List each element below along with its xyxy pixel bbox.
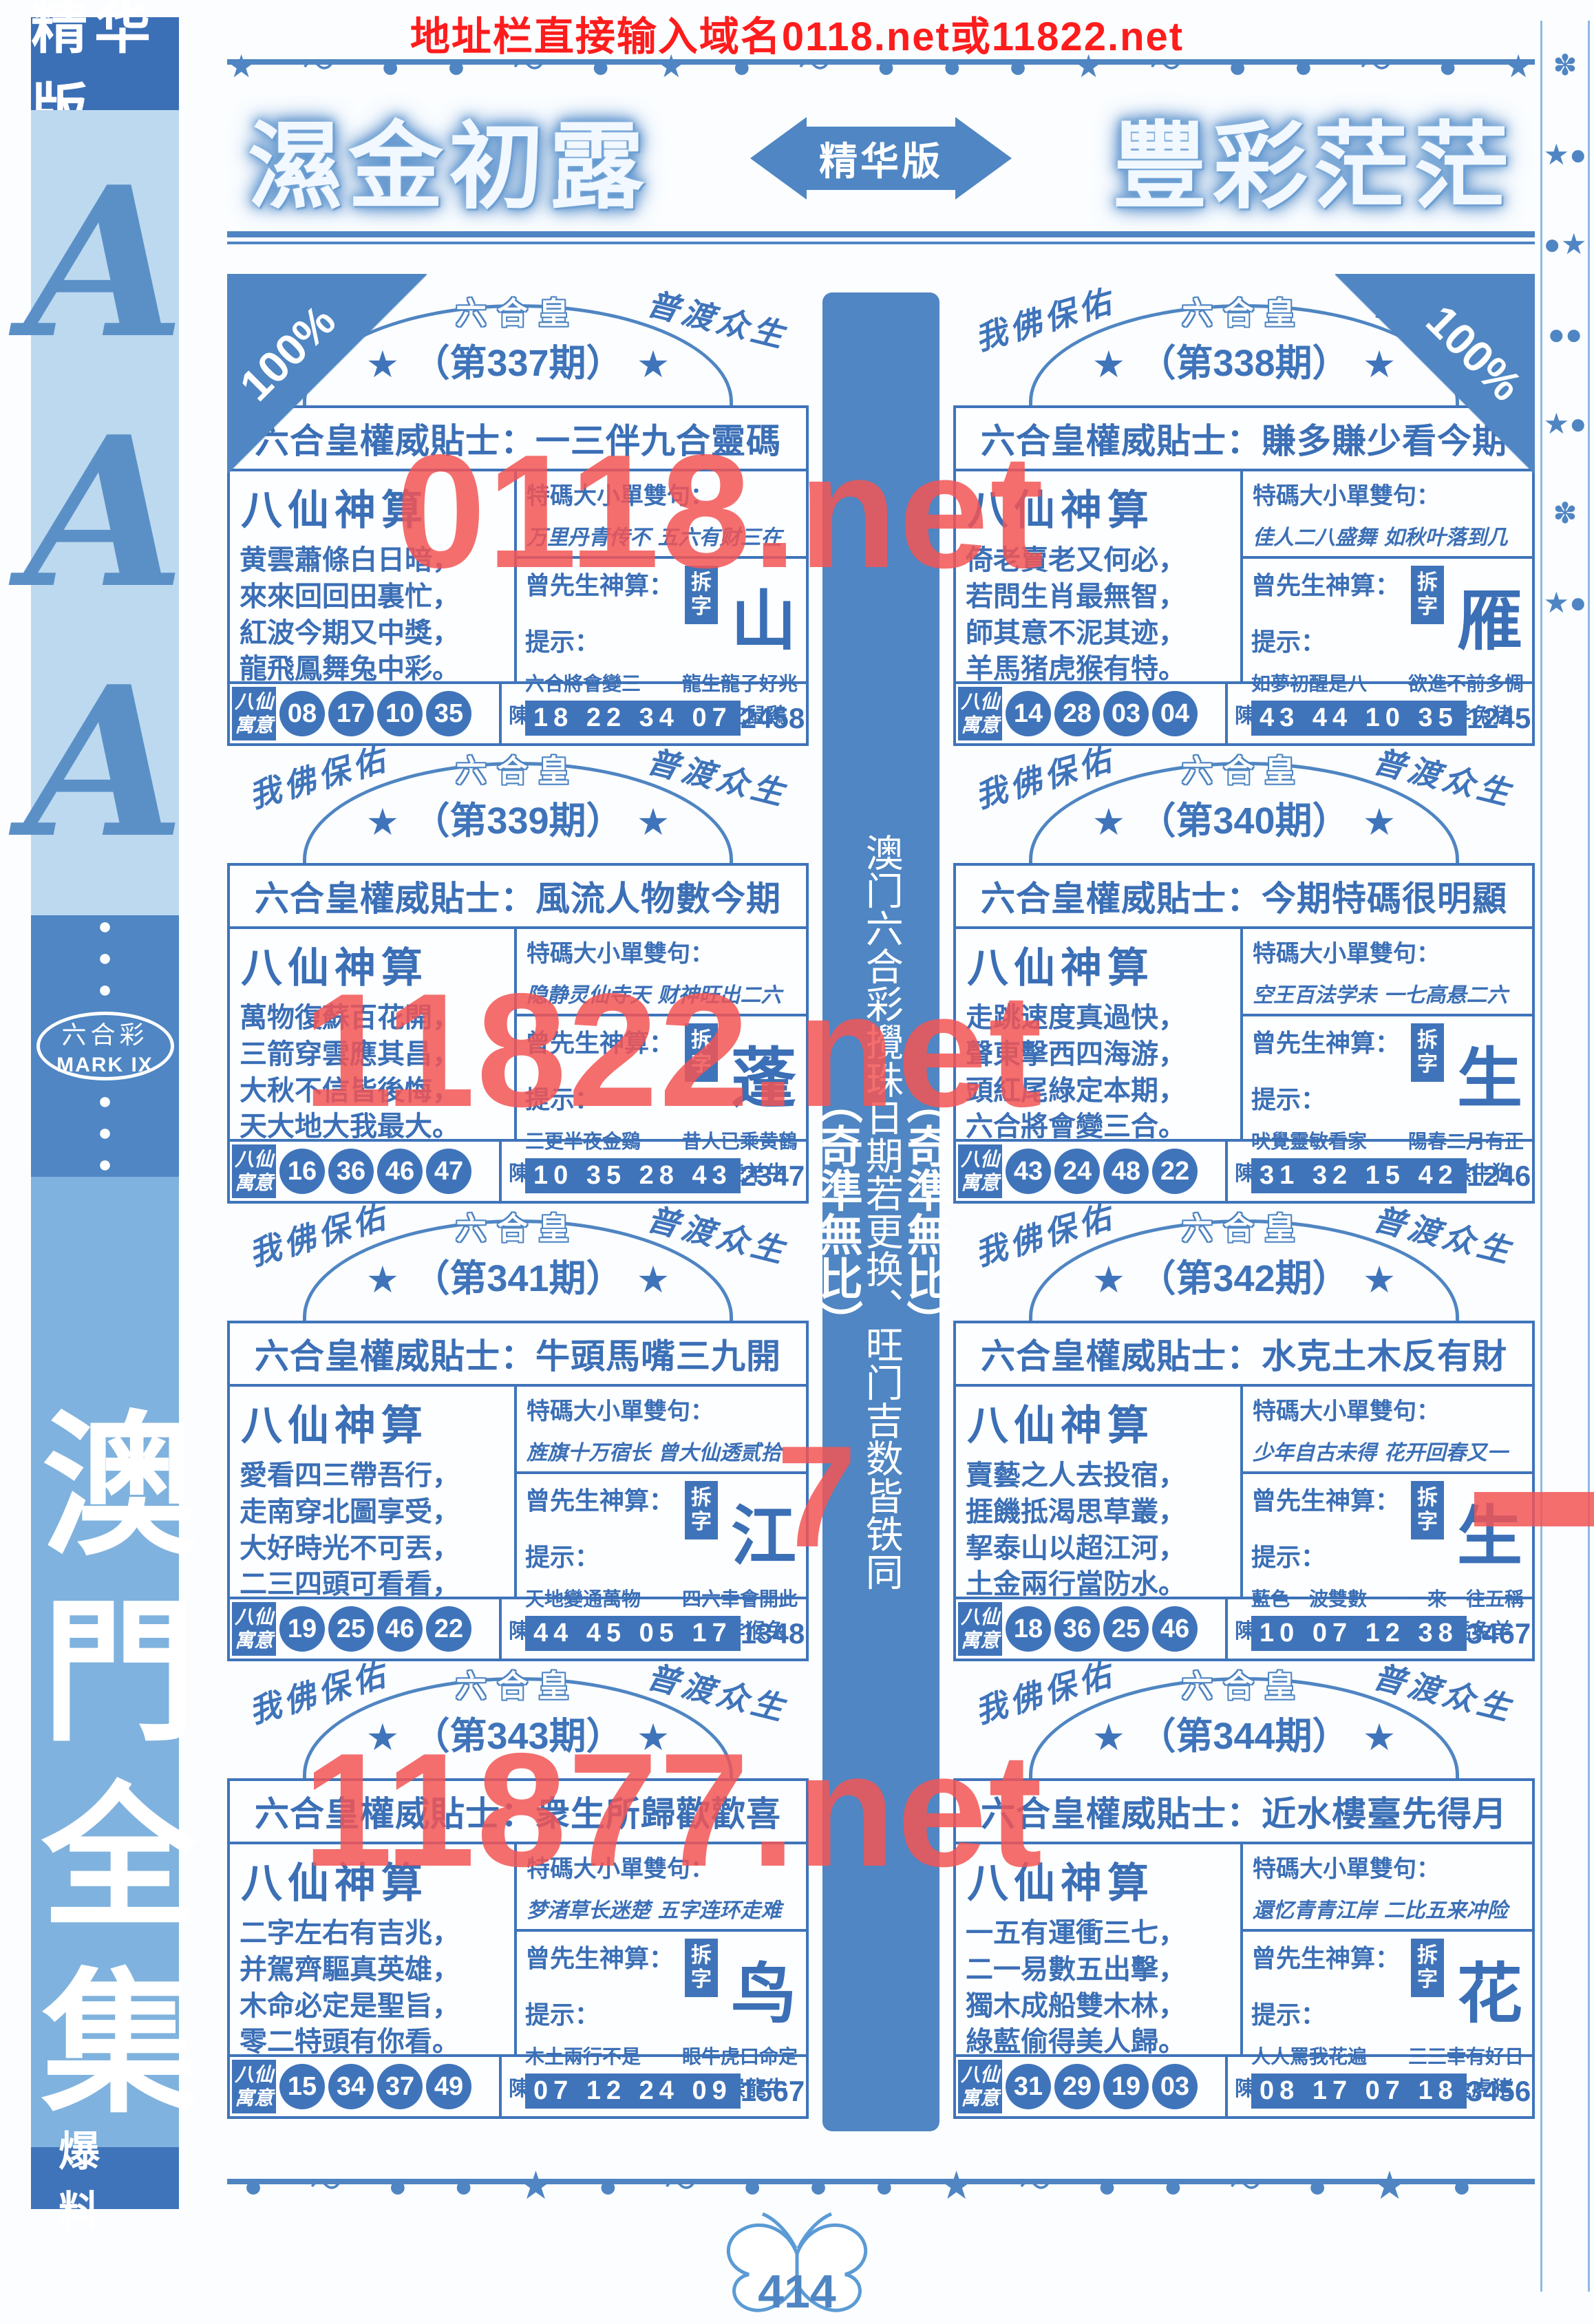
split-character-label: 拆字 [685,1481,718,1539]
number-ball: 16 [279,1149,325,1194]
number-ball: 28 [1054,691,1100,736]
panel-arc-header: 我佛保佑 普渡众生 六合皇 ★（第339期）★ [227,746,809,863]
verse-couplet: 空王百法学未 一七高悬二六 [1253,978,1522,1008]
number-ball: 47 [426,1149,471,1194]
master-section: 曾先生神算： 拆字 江 提示： 天地變通萬物 四六幸會開此 [517,1474,806,1655]
panel-tip-title: 六合皇權威貼士：水克土木反有財 [956,1323,1532,1387]
issue-number: （第341期） [412,1258,623,1299]
issue-number: （第338期） [1138,343,1349,384]
baxian-numbers-row: 八仙寓意 19 25 46 22 [230,1599,502,1659]
star-icon: ★ [1094,804,1123,841]
brand-title: 六合皇 [227,1661,809,1705]
number-ball: 34 [328,2064,374,2109]
page-number: 414 [694,2265,900,2318]
baxian-numbers-row: 八仙寓意 43 24 48 22 [956,1142,1228,1201]
issue-number: （第344期） [1138,1716,1349,1757]
master-section: 曾先生神算： 拆字 生 提示： 吠覺靈敏看家 陽春二月有正 [1243,1016,1532,1197]
baxian-title: 八仙神算 [967,1392,1231,1452]
lucky-code: 1567 [741,2075,805,2108]
verse-section: 特碼大小單雙句： 還忆青青江岸 二比五来冲险 [1243,1844,1532,1932]
fortune-poem: 愛看四三帶吾行， 走南穿北圖享受， 大好時光不可丟， 二三四頭可看看， [240,1458,504,1603]
panel-tip-title: 六合皇權威貼士：風流人物數今期 [230,866,806,929]
split-character: 鸟 [731,1941,796,2036]
number-ball: 15 [279,2064,325,2109]
brand-title: 六合皇 [227,1204,809,1248]
issue-number: （第339期） [412,800,623,842]
number-ball: 36 [328,1149,374,1194]
prediction-column: 特碼大小單雙句： 空王百法学未 一七高悬二六 曾先生神算： 拆字 生 提示： [1243,929,1532,1139]
hint-right: 欲進不前多惆 [1408,669,1524,696]
verse-couplet: 佳人二八盛舞 如秋叶落到几 [1253,520,1522,551]
split-character: 雁 [1457,568,1522,663]
aaa-letters: A A A [31,110,179,915]
lucky-code: 1245 [1467,702,1531,735]
verse-couplet: 少年自古未得 花开回春又一 [1253,1436,1522,1466]
master-section: 曾先生神算： 拆字 鸟 提示： 木土兩行不是 眼牛虎口命定 [517,1932,806,2113]
star-icon: ★ [639,1262,668,1299]
lucky-code: 3467 [1467,1617,1531,1650]
page-footer: 414 [0,2206,1594,2323]
split-character-label: 拆字 [1411,566,1444,624]
baxian-meaning-label: 八仙寓意 [958,687,1002,740]
lucky-code: 1348 [741,1617,805,1650]
number-ball: 04 [1152,691,1198,736]
lottery-panel: 我佛保佑 普渡众生 六合皇 ★（第342期）★ 六合皇權威貼士：水克土木反有財 [953,1204,1535,1661]
right-ornament-strip: ✽★●●★●●★●✽★● [1540,21,1590,2292]
fortune-poem: 二字左右有吉兆， 并駕齊驅真英雄， 木命必定是聖旨， 零二特頭有你看。 [240,1915,504,2060]
issue-line: ★（第339期）★ [227,790,809,844]
panel-arc-header: 我佛保佑 普渡众生 六合皇 ★（第341期）★ [227,1204,809,1321]
issue-number: （第340期） [1138,800,1349,842]
lucky-numbers: 44 45 05 17 [525,1616,741,1651]
number-ball: 46 [377,1149,423,1194]
left-sidebar: 精华版 A A A ●●● 六合彩 MARK IX ●●● 澳門全集 爆料 [31,17,179,2209]
lucky-code: 3456 [1467,2075,1531,2108]
baxian-meaning-label: 八仙寓意 [232,1144,276,1197]
master-section: 曾先生神算： 拆字 雁 提示： 如夢初醒是八 欲進不前多惆 [1243,559,1532,740]
logo-english: MARK IX [56,1054,153,1077]
masthead-right-title: 豐彩茫茫 [1112,89,1514,227]
number-ball: 46 [1152,1606,1198,1652]
arrow-right-icon [955,117,1012,200]
panel-arc-header: 我佛保佑 普渡众生 六合皇 ★（第340期）★ [953,746,1535,863]
verse-section: 特碼大小單雙句： 少年自古未得 花开回春又一 [1243,1387,1532,1474]
panel-tip-title: 六合皇權威貼士：今期特碼很明顯 [956,866,1532,929]
hint-left: 如夢初醒是八 [1251,669,1367,696]
baxian-numbers-row: 八仙寓意 15 34 37 49 [230,2057,502,2116]
verse-section: 特碼大小單雙句： 佳人二八盛舞 如秋叶落到几 [1243,471,1532,559]
number-ball: 17 [328,691,374,736]
brand-title: 六合皇 [953,1204,1535,1248]
prediction-column: 特碼大小單雙句： 佳人二八盛舞 如秋叶落到几 曾先生神算： 拆字 雁 提示： [1243,471,1532,681]
baxian-meaning-label: 八仙寓意 [232,2060,276,2113]
lucky-numbers: 10 07 12 38 [1251,1616,1467,1651]
brand-title: 六合皇 [953,1661,1535,1705]
fortune-column: 八仙神算 賣藝之人去投宿， 捱饑抵渴思草叢， 挈泰山以超江河， 土金兩行當防水。 [956,1387,1243,1597]
number-ball: 31 [1006,2064,1051,2109]
lottery-panel: 我佛保佑 普渡众生 六合皇 ★（第341期）★ 六合皇權威貼士：牛頭馬嘴三九開 [227,1204,809,1661]
number-ball: 19 [1103,2064,1149,2109]
masthead: 濕金初露 精华版 豐彩茫茫 [227,89,1535,227]
issue-number: （第342期） [1138,1258,1349,1299]
lucky-numbers: 08 17 07 18 [1251,2074,1467,2109]
issue-line: ★（第340期）★ [953,790,1535,844]
masthead-rule [227,231,1535,244]
double-arrow-banner: 精华版 [750,117,1012,200]
dots-ornament: ●●● [94,911,117,1006]
number-ball: 14 [1006,691,1051,736]
hint-right: 陽春二月有正 [1408,1127,1524,1154]
number-ball: 03 [1103,691,1149,736]
star-icon: ★ [1094,347,1123,383]
baxian-meaning-label: 八仙寓意 [958,1144,1002,1197]
baxian-numbers-row: 八仙寓意 16 36 46 47 [230,1142,502,1201]
star-icon: ★ [1365,1262,1394,1299]
verse-couplet: 還忆青青江岸 二比五来冲险 [1253,1893,1522,1923]
baxian-meaning-label: 八仙寓意 [232,1602,276,1655]
verse-section: 特碼大小單雙句： 旌旗十万宿长 曾大仙透贰拾 [517,1387,806,1474]
watermark-fragment: 7 [776,1425,858,1569]
hint-left: 六合將會變三 [525,669,641,696]
burst-label: 爆料 [31,2147,179,2209]
verse-section: 特碼大小單雙句： 空王百法学未 一七高悬二六 [1243,929,1532,1016]
number-ball: 49 [426,2064,471,2109]
lucky-numbers: 10 35 28 43 [525,1158,741,1193]
split-character-label: 拆字 [1411,1481,1444,1539]
lucky-code: 1246 [1467,1160,1531,1193]
bottom-ornament-border: ●～●●★●～●●●★～●●～●★● [227,2161,1535,2201]
fortune-column: 八仙神算 愛看四三帶吾行， 走南穿北圖享受， 大好時光不可丟， 二三四頭可看看， [230,1387,517,1597]
letter-a: A [25,420,185,606]
lucky-code: 2347 [741,1160,805,1193]
mark-six-logo: 六合彩 MARK IX [36,1012,174,1080]
watermark-11822: 11822.net [303,969,1043,1131]
baxian-numbers-row: 八仙寓意 18 36 25 46 [956,1599,1228,1659]
watermark-11877: 11877.net [303,1729,1043,1890]
hint-right: 三三幸有好日 [1408,2042,1524,2069]
hint-left: 吠覺靈敏看家 [1251,1127,1367,1154]
letter-a: A [25,170,185,356]
baxian-title: 八仙神算 [241,1392,504,1452]
hint-right: 一來一往五稱 [1408,1584,1524,1612]
brand-title: 六合皇 [953,746,1535,790]
panel-box: 六合皇權威貼士：水克土木反有財 八仙神算 賣藝之人去投宿， 捱饑抵渴思草叢， 挈… [953,1321,1535,1661]
hint-right: 眼牛虎口命定 [682,2042,798,2069]
number-ball: 46 [377,1606,423,1652]
number-ball: 22 [1152,1149,1198,1194]
split-character: 生 [1457,1026,1522,1120]
logo-chinese: 六合彩 [61,1015,148,1051]
dots-ornament: ●●● [94,1086,117,1181]
baxian-numbers-row: 八仙寓意 31 29 19 03 [956,2057,1228,2116]
lucky-numbers: 31 32 15 42 [1251,1158,1467,1193]
corner-badge-right: 100% [1335,274,1535,473]
split-character-label: 拆字 [1411,1023,1444,1082]
issue-number: （第337期） [412,343,623,384]
panel-box: 六合皇權威貼士：牛頭馬嘴三九開 八仙神算 愛看四三帶吾行， 走南穿北圖享受， 大… [227,1321,809,1661]
hint-right: 四六幸會開此 [682,1584,798,1612]
split-character-label: 拆字 [685,1939,718,1997]
baxian-meaning-label: 八仙寓意 [958,1602,1002,1655]
panel-tip-title: 六合皇權威貼士：牛頭馬嘴三九開 [230,1323,806,1387]
number-ball: 19 [279,1606,325,1652]
split-character-label: 拆字 [1411,1939,1444,1997]
number-ball: 35 [426,691,471,736]
hint-left: 人人罵我花遍 [1251,2042,1367,2069]
ornament-glyphs: ●～●●★●～●●●★～●●～●★● [227,2161,1535,2206]
number-ball: 22 [426,1606,471,1652]
fortune-poem: 賣藝之人去投宿， 捱饑抵渴思草叢， 挈泰山以超江河， 土金兩行當防水。 [966,1458,1231,1603]
lucky-numbers: 43 44 10 35 [1251,701,1467,736]
baxian-numbers-row: 八仙寓意 14 28 03 04 [956,684,1228,743]
number-ball: 36 [1054,1606,1100,1652]
baxian-meaning-label: 八仙寓意 [958,2060,1002,2113]
issue-line: ★（第341期）★ [227,1248,809,1302]
prediction-column: 特碼大小單雙句： 旌旗十万宿长 曾大仙透贰拾 曾先生神算： 拆字 江 提示： [517,1387,806,1597]
star-icon: ★ [1094,1262,1123,1299]
star-icon: ★ [1365,1720,1394,1756]
number-ball: 25 [1103,1606,1149,1652]
number-ball: 03 [1152,2064,1198,2109]
hint-left: 藍色一波雙數 [1251,1584,1367,1612]
letter-a: A [25,670,185,855]
number-ball: 18 [1006,1606,1051,1652]
scanned-lottery-tip-sheet: 地址栏直接输入域名0118.net或11822.net ★～●●～●★●～●●●… [0,0,1594,2324]
lucky-numbers: 18 22 34 07 [525,701,741,736]
hint-right: 龍生龍子好兆 [682,669,798,696]
banner-body-text: 澳门六合彩攪珠日期若更换、旺门吉数皆铁同 [860,833,902,1590]
number-ball: 24 [1054,1149,1100,1194]
edition-label: 精华版 [804,127,958,190]
baxian-meaning-label: 八仙寓意 [232,687,276,740]
number-ball: 48 [1103,1149,1149,1194]
hint-left: 木土兩行不是 [525,2042,641,2069]
star-icon: ★ [368,804,397,841]
number-ball: 25 [328,1606,374,1652]
panel-arc-header: 我佛保佑 普渡众生 六合皇 ★（第342期）★ [953,1204,1535,1321]
masthead-left-title: 濕金初露 [248,89,650,227]
master-section: 曾先生神算： 拆字 花 提示： 人人罵我花遍 三三幸有好日 [1243,1932,1532,2113]
star-icon: ★ [368,1262,397,1299]
brand-title: 六合皇 [227,746,809,790]
split-character: 花 [1457,1941,1522,2036]
lucky-numbers: 07 12 24 09 [525,2074,741,2109]
star-icon: ★ [639,804,668,841]
arrow-left-icon [750,117,807,200]
mark-six-logo-band: ●●● 六合彩 MARK IX ●●● [31,915,179,1177]
macau-collection-title: 澳門全集 [31,1177,179,2147]
lucky-code: 2458 [741,702,805,735]
number-ball: 43 [1006,1149,1051,1194]
verse-couplet: 旌旗十万宿长 曾大仙透贰拾 [527,1436,796,1466]
number-ball: 10 [377,691,423,736]
star-icon: ★ [1094,1720,1123,1756]
number-ball: 08 [279,691,325,736]
baxian-numbers-row: 八仙寓意 08 17 10 35 [230,684,502,743]
fortune-poem: 一五有運衝三七， 二一易數五出擊， 獨木成船雙木林， 綠藍偷得美人歸。 [966,1915,1231,2060]
watermark-0118: 0118.net [396,430,1045,592]
prediction-column: 特碼大小單雙句： 還忆青青江岸 二比五来冲险 曾先生神算： 拆字 花 提示： [1243,1844,1532,2054]
number-ball: 37 [377,2064,423,2109]
number-ball: 29 [1054,2064,1100,2109]
watermark-bar-fragment [1474,1492,1594,1526]
top-url-banner: 地址栏直接输入域名0118.net或11822.net [0,4,1594,62]
star-icon: ★ [639,347,668,383]
hint-left: 天地變通萬物 [525,1584,641,1612]
issue-line: ★（第342期）★ [953,1248,1535,1302]
star-icon: ★ [1365,804,1394,841]
